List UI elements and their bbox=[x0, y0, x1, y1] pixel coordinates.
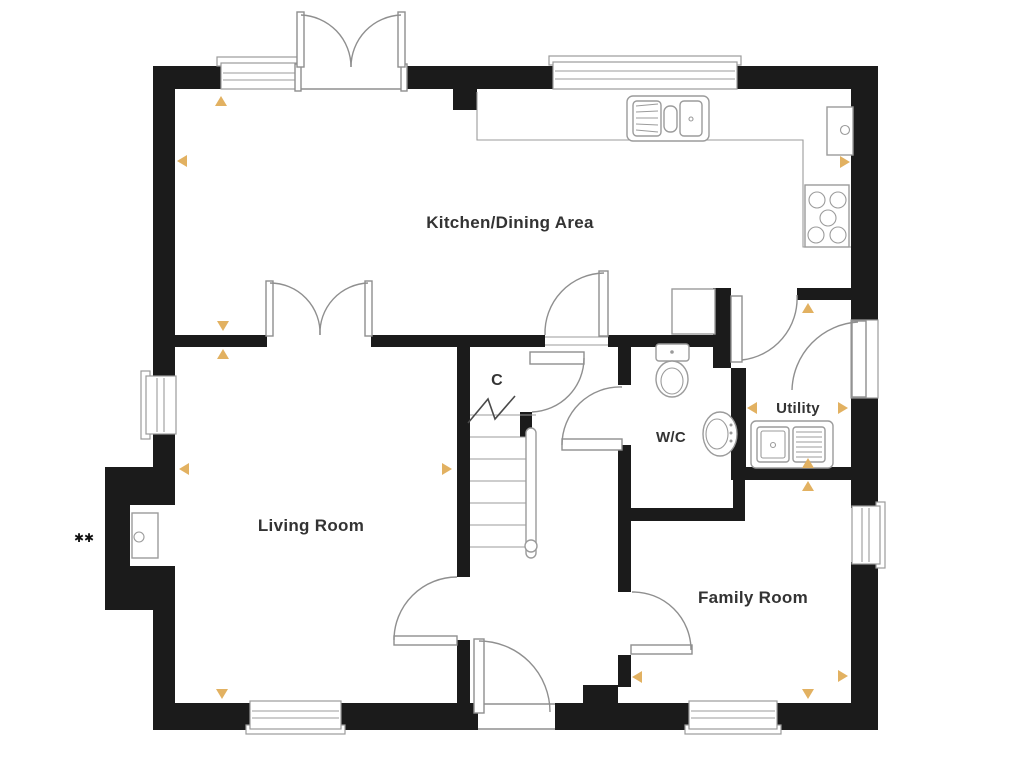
dimension-marker-up bbox=[217, 349, 229, 359]
floorplan-page: Kitchen/Dining Area Living Room Family R… bbox=[0, 0, 1024, 768]
wall-cupboard bbox=[672, 289, 715, 334]
walls bbox=[105, 66, 878, 730]
footnote-asterisks: ✱✱ bbox=[74, 531, 94, 545]
wall-bottom-2 bbox=[340, 703, 478, 730]
room-label-family-room: Family Room bbox=[698, 588, 808, 607]
wash-basin bbox=[703, 412, 737, 456]
dimension-marker-up bbox=[802, 303, 814, 313]
wall-right-mid bbox=[851, 398, 878, 508]
door-family-room bbox=[631, 592, 692, 654]
wall-hall-west-lower bbox=[457, 640, 470, 703]
door-utility-external bbox=[792, 320, 878, 398]
wall-left-mid bbox=[153, 432, 175, 467]
chimney-breast-side bbox=[105, 505, 130, 566]
room-label-wc: W/C bbox=[656, 429, 686, 446]
dimension-marker-down bbox=[217, 321, 229, 331]
window-kitchen bbox=[549, 56, 741, 89]
wall-pier-top bbox=[453, 89, 477, 110]
utility-sink bbox=[751, 421, 833, 468]
wall-stair-west bbox=[457, 347, 470, 577]
dimension-marker-left bbox=[179, 463, 189, 475]
wall-right-upper bbox=[851, 66, 878, 320]
door-wc bbox=[562, 387, 622, 450]
boiler-unit bbox=[827, 107, 853, 155]
door-cupboard bbox=[530, 352, 584, 412]
dimension-marker-right bbox=[838, 402, 848, 414]
room-label-utility: Utility bbox=[776, 400, 820, 417]
window-living-left bbox=[141, 371, 176, 439]
wall-bottom-1 bbox=[153, 703, 252, 730]
room-labels: Kitchen/Dining Area Living Room Family R… bbox=[74, 213, 820, 607]
wall-kitchen-living-1 bbox=[175, 335, 267, 347]
room-label-kitchen-dining: Kitchen/Dining Area bbox=[426, 213, 594, 232]
dimension-marker-up bbox=[802, 481, 814, 491]
dimension-marker-down bbox=[216, 689, 228, 699]
wall-family-pier-1 bbox=[618, 655, 631, 687]
windows bbox=[141, 56, 885, 734]
wall-top-middle bbox=[405, 66, 553, 89]
door-kitchen-hall bbox=[545, 271, 608, 345]
wall-wc-west-upper bbox=[618, 347, 631, 385]
window-family-bottom bbox=[685, 701, 781, 734]
dimension-marker-right bbox=[838, 670, 848, 682]
dimension-marker-right bbox=[442, 463, 452, 475]
wall-family-pier-2 bbox=[583, 685, 618, 703]
window-living-bottom bbox=[246, 701, 345, 734]
stair-break-line bbox=[468, 396, 515, 423]
fireplace-recess bbox=[130, 505, 176, 566]
room-label-cupboard: C bbox=[491, 372, 503, 389]
room-label-living-room: Living Room bbox=[258, 516, 364, 535]
wall-bottom-3 bbox=[555, 703, 690, 730]
wall-wc-south bbox=[618, 508, 745, 521]
kitchen-sink bbox=[627, 96, 709, 141]
doors bbox=[266, 12, 878, 729]
wall-wc-kitchen-pier bbox=[713, 288, 731, 368]
dimension-marker-down bbox=[802, 689, 814, 699]
dimension-marker-right bbox=[840, 156, 850, 168]
dimension-marker-left bbox=[177, 155, 187, 167]
floorplan-drawing: Kitchen/Dining Area Living Room Family R… bbox=[0, 0, 1024, 768]
dimension-marker-up bbox=[215, 96, 227, 106]
french-doors bbox=[295, 12, 407, 91]
wall-utility-top-stub bbox=[797, 288, 851, 300]
wall-utility-south bbox=[743, 467, 851, 480]
wall-kitchen-living-2 bbox=[371, 335, 545, 347]
wall-utility-family-link bbox=[733, 480, 745, 513]
wall-right-lower bbox=[851, 562, 878, 730]
window-family-right bbox=[852, 502, 885, 568]
double-doors-living-kitchen bbox=[266, 281, 372, 336]
dimension-marker-left bbox=[747, 402, 757, 414]
hob bbox=[805, 185, 849, 247]
front-door bbox=[474, 639, 555, 729]
door-kitchen-utility bbox=[731, 295, 797, 362]
toilet bbox=[656, 344, 689, 397]
wall-left-upper bbox=[153, 66, 175, 378]
dimension-marker-left bbox=[632, 671, 642, 683]
door-living-room bbox=[394, 577, 457, 645]
chimney-breast-bottom bbox=[105, 566, 175, 610]
chimney-breast-top bbox=[105, 467, 175, 505]
window-top-left bbox=[217, 57, 303, 89]
